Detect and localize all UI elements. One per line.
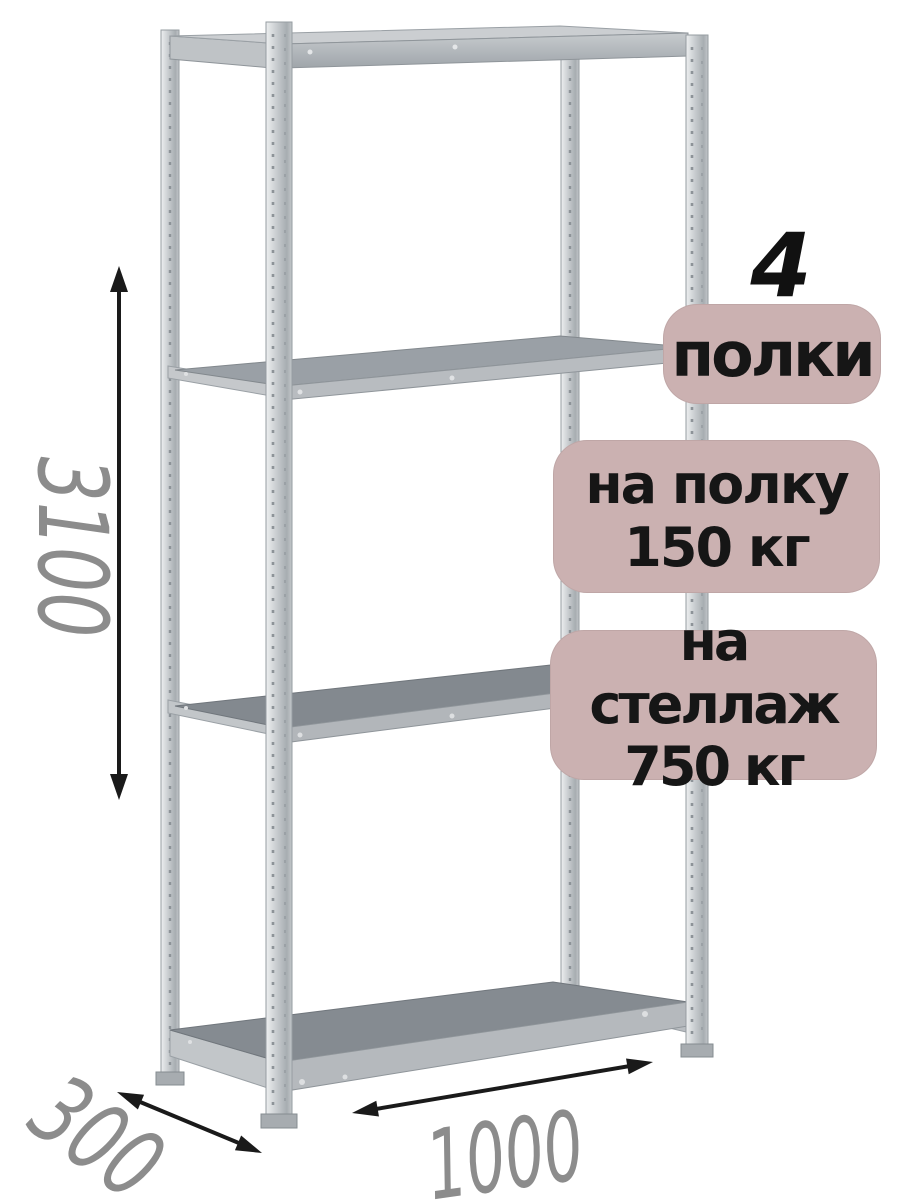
product-image: 3100 1000 300 4 полки на полку 150 кг на… xyxy=(0,0,900,1200)
shelf-bottom xyxy=(170,982,688,1092)
per-rack-load-badge: на стеллаж 750 кг xyxy=(550,630,877,780)
back-left-post xyxy=(156,30,184,1085)
shelves-badge: полки xyxy=(663,304,881,404)
front-left-foot xyxy=(261,1114,297,1128)
shelf-top xyxy=(170,26,688,69)
shelving-unit-illustration xyxy=(0,0,900,1200)
per-rack-load-line2: 750 кг xyxy=(624,736,802,799)
per-shelf-load-line2: 150 кг xyxy=(624,517,808,580)
per-shelf-load-badge: на полку 150 кг xyxy=(553,440,880,593)
front-left-post xyxy=(261,22,297,1128)
height-dimension-label: 3100 xyxy=(24,457,120,638)
front-right-foot xyxy=(681,1044,713,1057)
shelves-badge-label: полки xyxy=(671,318,872,391)
width-dimension-label: 1000 xyxy=(421,1098,589,1200)
back-left-foot xyxy=(156,1072,184,1085)
shelf-count-number: 4 xyxy=(736,222,826,310)
per-shelf-load-line1: на полку xyxy=(585,454,847,517)
per-rack-load-line1: на стеллаж xyxy=(550,611,877,736)
shelf-2 xyxy=(168,336,688,400)
